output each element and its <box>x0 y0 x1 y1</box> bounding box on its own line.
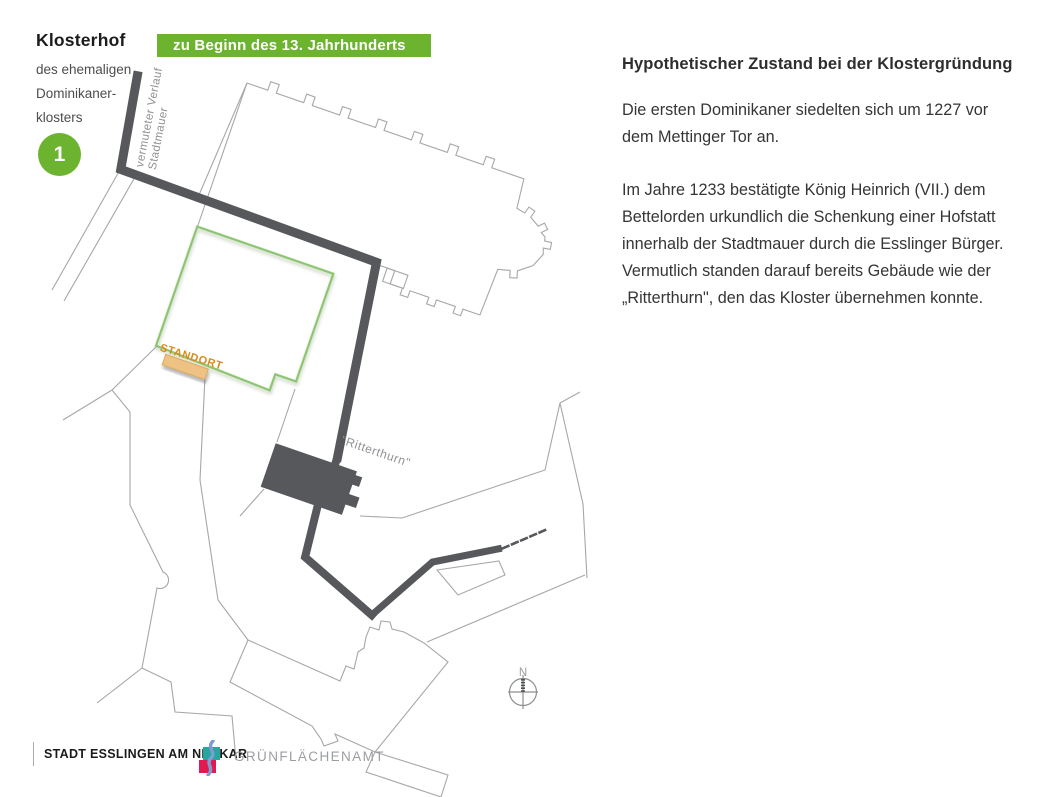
parcel-line-east-3 <box>427 575 585 642</box>
page-title: Klosterhof <box>36 30 126 51</box>
west-parcel-zigzag <box>63 346 157 420</box>
city-wall-south-west <box>290 504 401 615</box>
panel-number-badge: 1 <box>38 133 81 176</box>
church-west-wall <box>198 80 247 201</box>
article-paragraph-2: Im Jahre 1233 bestätigte König Heinrich … <box>622 177 1063 312</box>
parcel-line-below-standort <box>200 377 248 640</box>
article-heading: Hypothetischer Zustand bei der Klostergr… <box>622 55 1063 74</box>
wall-gate-protrusion <box>383 268 408 288</box>
small-building-southeast <box>437 561 505 595</box>
footer-divider <box>33 742 34 766</box>
parcel-line-east-2 <box>560 403 587 578</box>
description-article: Hypothetischer Zustand bei der Klostergr… <box>622 55 1063 338</box>
city-wall-south-east <box>372 517 499 647</box>
parcel-outlines <box>52 83 587 797</box>
church-nave-and-apse <box>198 74 572 336</box>
parcel-line-building-southwest <box>240 489 264 516</box>
street-line-northwest-1 <box>52 168 121 290</box>
courtyard-outline <box>154 227 333 398</box>
info-panel: { "header": { "title": "Klosterhof", "su… <box>0 0 1063 797</box>
article-paragraph-1: Die ersten Dominikaner siedelten sich um… <box>622 97 1063 151</box>
city-wall-dashed-continuation <box>503 518 547 560</box>
page-subtitle: des ehemaligen Dominikaner- klosters <box>36 58 131 130</box>
west-boundary-with-tower <box>97 412 169 703</box>
esslingen-logo-icon <box>198 740 224 776</box>
city-wall <box>0 76 643 660</box>
street-line-northwest-2 <box>64 177 135 301</box>
church-outline <box>189 72 572 337</box>
period-banner: zu Beginn des 13. Jahrhunderts <box>157 34 431 57</box>
city-wall-north <box>41 76 434 458</box>
parcel-line-courtyard-to-building <box>277 389 295 442</box>
footer-department: GRÜNFLÄCHENAMT <box>234 749 385 764</box>
large-building-south <box>230 621 448 752</box>
compass-icon: N <box>508 667 538 709</box>
